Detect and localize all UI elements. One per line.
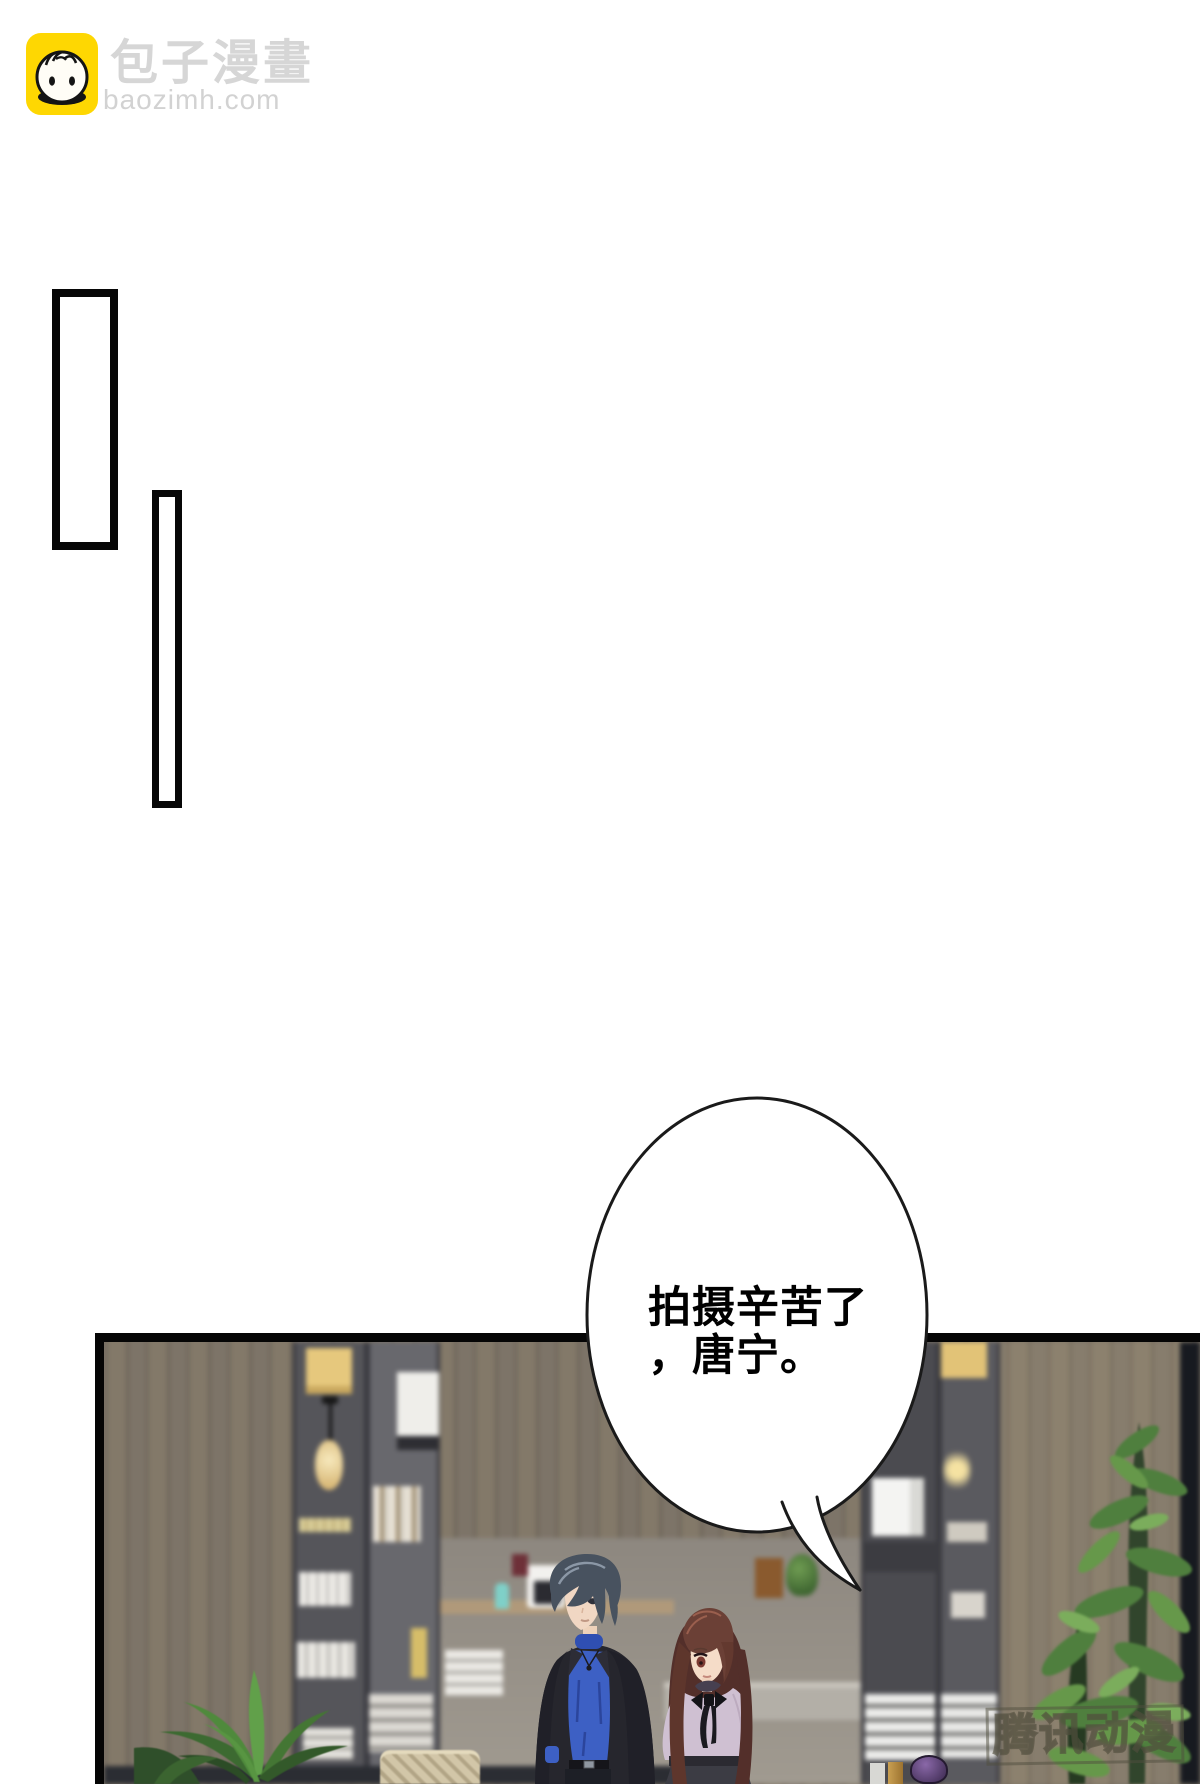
bookshelf-tower-left-2 (367, 1342, 440, 1784)
site-name[interactable]: 包子漫畫 (110, 38, 314, 91)
book-row (373, 1486, 421, 1542)
white-object (870, 1763, 885, 1784)
shelf-slot (397, 1436, 439, 1450)
palm-plant (134, 1640, 374, 1784)
wicker-basket (380, 1750, 480, 1784)
yellow-box (306, 1348, 352, 1394)
lamp-cord (329, 1400, 332, 1442)
baozi-bun-icon (26, 33, 98, 115)
panel-frame-tall-rect (52, 289, 118, 550)
book-row (369, 1694, 433, 1752)
shelf-item (951, 1592, 985, 1618)
site-logo[interactable] (26, 33, 98, 115)
panel-frame-thin-rect (152, 490, 182, 808)
purple-object (910, 1755, 948, 1784)
tencent-comics-watermark: 腾讯动漫 (986, 1704, 1185, 1765)
speech-text-line2: ，唐宁。 (648, 1332, 893, 1380)
tan-cylinder (888, 1762, 903, 1784)
shelf-item (947, 1522, 987, 1542)
book-row (299, 1518, 351, 1532)
speech-text-line1: 拍摄辛苦了 (648, 1284, 893, 1332)
book-stack (865, 1694, 935, 1760)
book-row (299, 1572, 351, 1606)
yellow-book (411, 1628, 427, 1678)
lamp-bulb (315, 1440, 343, 1490)
site-domain[interactable]: baozimh.com (103, 84, 281, 116)
counter-books (445, 1650, 503, 1696)
lamp-glow (943, 1448, 971, 1492)
speech-text: 拍摄辛苦了 ，唐宁。 (648, 1284, 893, 1380)
woman-character (663, 1608, 753, 1784)
yellow-box (941, 1342, 987, 1378)
comic-reader-page: { "site_header": { "site_name": "包子漫畫", … (0, 0, 1200, 1784)
